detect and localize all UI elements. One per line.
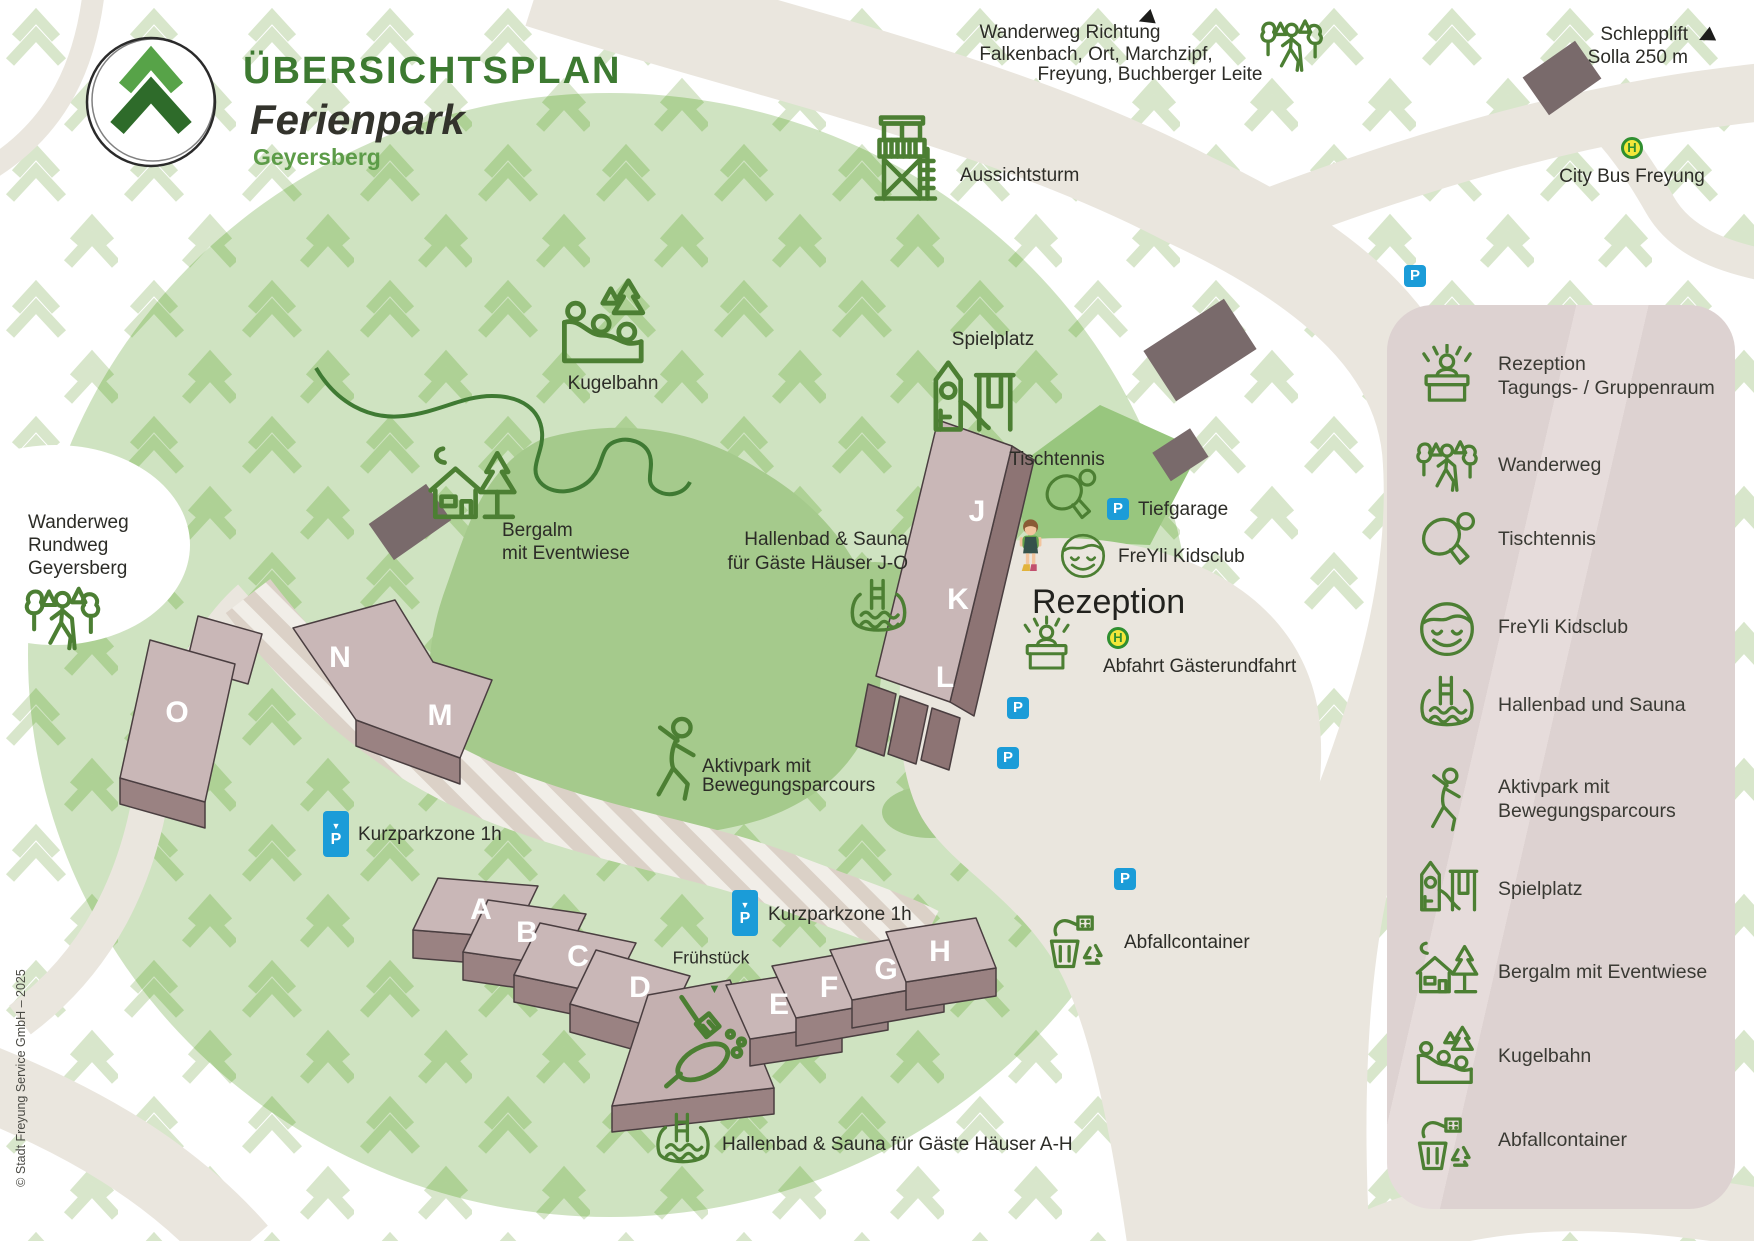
hallenbad-ah-label: Hallenbad & Sauna für Gäste Häuser A-H [722,1134,1073,1156]
reception-icon [1414,344,1480,410]
legend-label: Spielplatz [1498,878,1583,902]
legend-item-kidsclub: FreYli Kidsclub [1414,595,1628,661]
bergalm-label-2: mit Eventwiese [502,543,630,565]
building-letter: K [947,583,969,617]
spielplatz-label: Spielplatz [952,329,1034,351]
legend-item-wanderweg: Wanderweg [1414,433,1601,499]
down-arrow-icon: ▼ [332,821,341,831]
kugelbahn-icon [1414,1024,1480,1090]
fruehstueck-marker-icon: ▼ [708,982,721,995]
down-arrow-icon: ▼ [741,900,750,910]
building-letter: G [874,953,897,987]
building-letter: N [329,641,351,675]
legend-label: Aktivpark mit [1498,776,1676,800]
aussichtsturm-label: Aussichtsturm [960,165,1079,187]
legend-label-2: Bewegungsparcours [1498,800,1676,824]
parking-sign: P [997,747,1019,769]
bus-stop-sign: H [1107,627,1129,649]
tischtennis-label: Tischtennis [1009,449,1104,471]
building-letter: O [165,696,188,730]
spielplatz-icon [1414,857,1480,923]
legend-item-rezeption: RezeptionTagungs- / Gruppenraum [1414,344,1715,410]
rezeption-label: Rezeption [1032,582,1185,622]
building-letter: J [969,495,986,529]
hallenbad-icon [1414,673,1480,739]
legend-item-hallenbad: Hallenbad und Sauna [1414,673,1686,739]
page-region: Geyersberg [253,144,381,171]
parking-sign: P [1114,868,1136,890]
kidsclub-icon [1414,595,1480,661]
aktivpark-label-2: Bewegungsparcours [702,775,875,797]
short-parking-sign: ▼ P [323,811,349,857]
abfahrt-label: Abfahrt Gästerundfahrt [1103,656,1296,678]
abfallcontainer-icon [1414,1108,1480,1174]
wanderweg-rundweg-label-3: Geyersberg [28,558,127,580]
city-bus-label: City Bus Freyung [1559,166,1705,188]
legend-item-kugelbahn: Kugelbahn [1414,1024,1591,1090]
building-letter: D [629,971,651,1005]
legend-item-abfallcontainer: Abfallcontainer [1414,1108,1627,1174]
legend-label: Wanderweg [1498,454,1601,478]
legend-label: Abfallcontainer [1498,1129,1627,1153]
legend-label: Tischtennis [1498,528,1596,552]
page-subtitle: Ferienpark [250,96,465,144]
kurzparkzone-left-label: Kurzparkzone 1h [358,824,502,846]
legend-item-spielplatz: Spielplatz [1414,857,1583,923]
wanderweg-rundweg-label-2: Rundweg [28,535,108,557]
overview-map: ÜBERSICHTSPLAN Ferienpark Geyersberg Wan… [0,0,1754,1241]
parking-sign: P [1404,265,1426,287]
kurzparkzone-mid-label: Kurzparkzone 1h [768,904,912,926]
parking-sign: P [1007,697,1029,719]
tiefgarage-label: Tiefgarage [1138,499,1228,521]
abfallcontainer-label: Abfallcontainer [1124,932,1250,954]
legend-label: FreYli Kidsclub [1498,616,1628,640]
aktivpark-icon [1414,767,1480,833]
wanderweg-richtung-label-1: Wanderweg Richtung [980,22,1161,44]
building-letter: A [470,893,492,927]
building-letter: C [567,940,589,974]
legend-item-aktivpark: Aktivpark mitBewegungsparcours [1414,767,1676,833]
schlepplift-label-1: Schlepplift [1600,24,1688,46]
tischtennis-icon [1414,507,1480,573]
building-letter: L [936,661,954,695]
parking-letter: P [331,831,342,848]
hallenbad-jo-label-2: für Gäste Häuser J-O [727,553,908,575]
freyli-kidsclub-label: FreYli Kidsclub [1118,546,1245,568]
parking-sign: P [1107,498,1129,520]
bus-stop-sign: H [1621,137,1643,159]
building-letter: B [516,916,538,950]
kugelbahn-label: Kugelbahn [568,373,659,395]
legend-item-bergalm: Bergalm mit Eventwiese [1414,940,1707,1006]
wanderweg-icon [1414,433,1480,499]
legend-label-2: Tagungs- / Gruppenraum [1498,377,1715,401]
legend-label: Hallenbad und Sauna [1498,694,1686,718]
legend-item-tischtennis: Tischtennis [1414,507,1596,573]
fruehstueck-label: Frühstück [673,948,750,969]
legend-label: Bergalm mit Eventwiese [1498,961,1707,985]
wanderweg-richtung-label-3: Freyung, Buchberger Leite [1038,64,1263,86]
page-title: ÜBERSICHTSPLAN [243,50,621,93]
bergalm-label-1: Bergalm [502,520,573,542]
building-letter: F [820,971,838,1005]
building-letter: M [428,699,453,733]
building-letter: H [929,935,951,969]
logo [87,38,215,166]
wanderweg-rundweg-label-1: Wanderweg [28,512,129,534]
copyright-text: © Stadt Freyung Service GmbH – 2025 [14,969,28,1187]
schlepplift-label-2: Solla 250 m [1588,47,1688,69]
legend-label: Kugelbahn [1498,1045,1591,1069]
parking-letter: P [740,910,751,927]
short-parking-sign: ▼ P [732,890,758,936]
building-letter: E [769,988,789,1022]
bergalm-icon [1414,940,1480,1006]
legend-label: Rezeption [1498,353,1715,377]
hallenbad-jo-label-1: Hallenbad & Sauna [744,529,908,551]
